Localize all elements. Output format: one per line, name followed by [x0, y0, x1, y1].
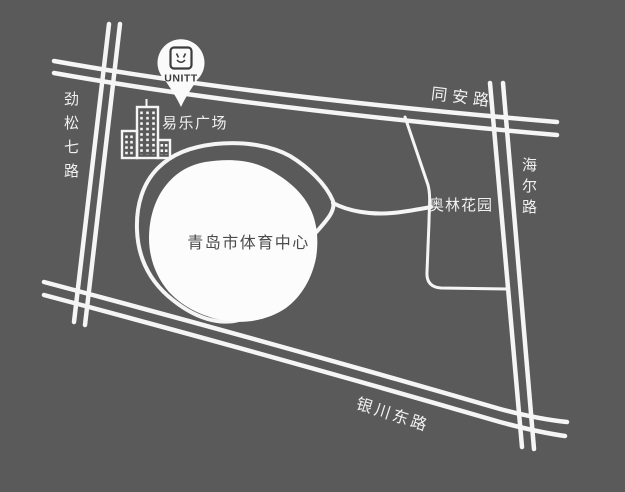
marker-brand-label: UNITT: [164, 73, 197, 85]
road-label-haier: 海尔路: [518, 157, 539, 220]
road-yinchuan-east: [44, 282, 567, 436]
road-haier: [490, 83, 534, 449]
road-loop-connector: [333, 203, 431, 214]
place-label-sports-center: 青岛市体育中心: [176, 229, 321, 253]
location-map: UNITT 劲松七路 同安路 海尔路 银川东路 易乐广场 奥林花园 青岛市体育中…: [0, 0, 625, 492]
road-label-jinsong7: 劲松七路: [60, 91, 81, 187]
place-label-yile-plaza: 易乐广场: [162, 112, 228, 133]
place-label-aolin-garden: 奥林花园: [429, 194, 493, 215]
